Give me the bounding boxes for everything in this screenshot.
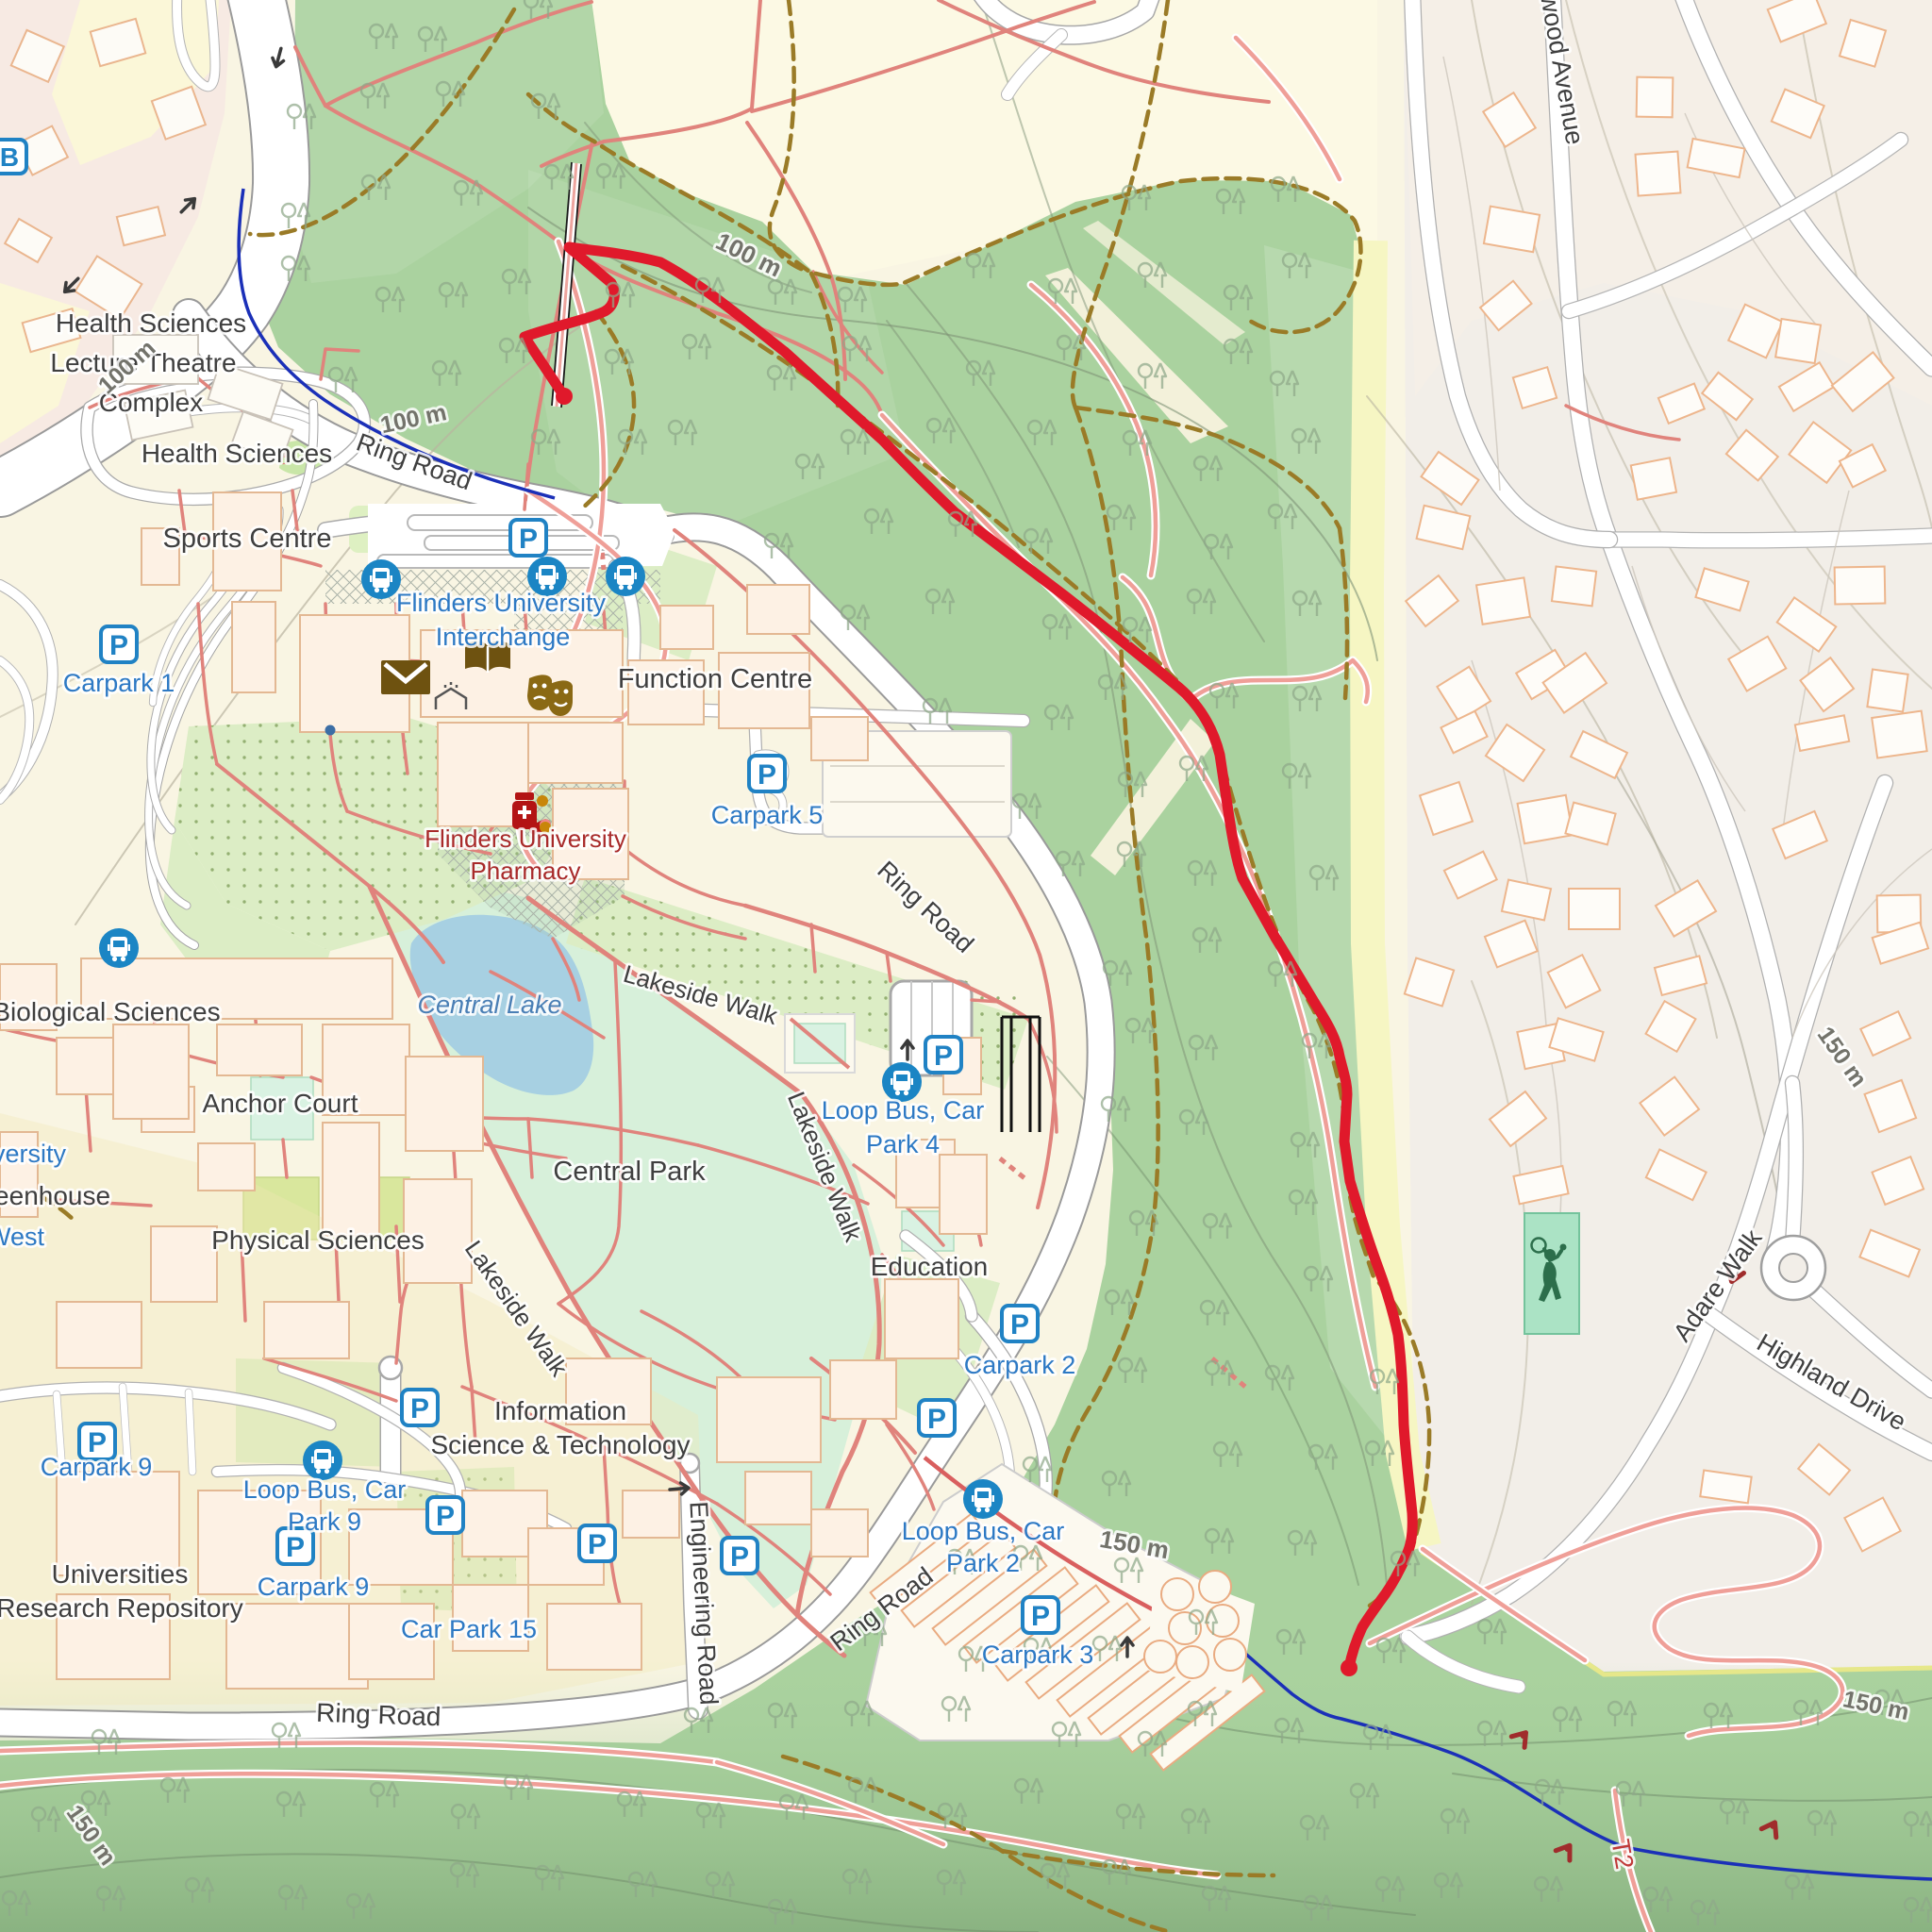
svg-text:P: P [410,1393,429,1424]
svg-text:P: P [730,1541,749,1573]
svg-text:Greenhouse: Greenhouse [0,1181,110,1210]
svg-text:P: P [934,1041,953,1072]
svg-text:Park 4: Park 4 [866,1130,940,1158]
svg-text:P: P [436,1501,455,1532]
svg-text:P: P [1031,1601,1050,1632]
svg-text:iversity: iversity [0,1140,67,1168]
svg-text:P: P [1010,1309,1029,1341]
svg-text:Biological Sciences: Biological Sciences [0,997,221,1026]
svg-text:Education: Education [871,1252,989,1281]
svg-text:P: P [109,630,128,661]
svg-text:Carpark 1: Carpark 1 [63,669,175,697]
svg-text:Carpark 3: Carpark 3 [982,1641,1094,1669]
svg-text:Central Lake: Central Lake [417,991,561,1019]
svg-text:Physical Sciences: Physical Sciences [211,1225,425,1255]
svg-text:West: West [0,1223,45,1251]
svg-text:Loop Bus, Car: Loop Bus, Car [243,1475,407,1504]
svg-text:T2: T2 [1606,1837,1639,1871]
svg-text:Park 2: Park 2 [946,1549,1020,1577]
svg-text:Carpark 2: Carpark 2 [964,1351,1076,1379]
svg-text:Flinders University: Flinders University [396,589,607,617]
svg-text:Carpark 9: Carpark 9 [41,1453,153,1481]
svg-text:P: P [286,1532,305,1563]
svg-text:Function Centre: Function Centre [618,664,812,694]
svg-text:Health Sciences: Health Sciences [142,439,332,468]
svg-text:Car Park 15: Car Park 15 [401,1615,537,1643]
svg-text:P: P [927,1404,946,1435]
svg-text:B: B [0,142,19,172]
svg-text:Ring Road: Ring Road [316,1698,441,1732]
svg-text:Anchor Court: Anchor Court [203,1089,358,1118]
svg-text:Park 9: Park 9 [288,1507,361,1536]
svg-text:P: P [519,524,538,555]
svg-text:Central Park: Central Park [553,1157,706,1187]
svg-text:Carpark 5: Carpark 5 [711,801,824,829]
svg-text:P: P [758,759,776,791]
svg-text:Information: Information [494,1396,626,1425]
svg-text:Carpark 9: Carpark 9 [258,1573,370,1601]
svg-text:Interchange: Interchange [436,623,571,651]
svg-text:P: P [588,1529,607,1560]
svg-text:Pharmacy: Pharmacy [470,857,580,885]
svg-text:Research Repository: Research Repository [0,1593,243,1623]
svg-text:Health Sciences: Health Sciences [56,308,246,338]
svg-text:Loop Bus, Car: Loop Bus, Car [902,1517,1065,1545]
svg-text:Universities: Universities [52,1559,189,1589]
svg-text:Loop Bus, Car: Loop Bus, Car [822,1096,985,1124]
svg-text:Science & Technology: Science & Technology [431,1430,691,1459]
svg-text:Sports Centre: Sports Centre [163,524,332,554]
svg-text:Flinders University: Flinders University [425,824,626,853]
